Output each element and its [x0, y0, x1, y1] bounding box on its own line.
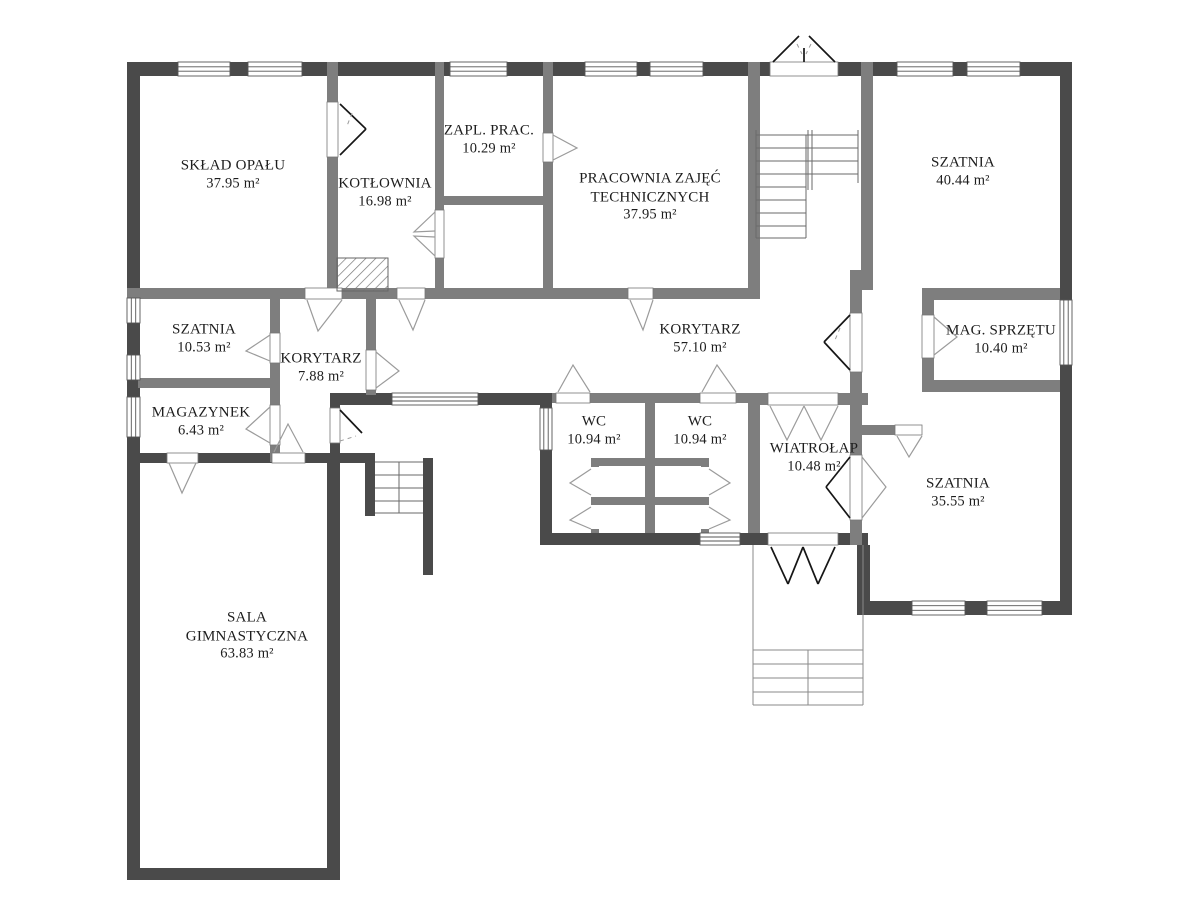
floor-plan: SKŁAD OPAŁU 37.95 m² KOTŁOWNIA 16.98 m² …	[0, 0, 1200, 900]
room-area: 35.55 m²	[898, 493, 1018, 511]
window	[912, 601, 965, 615]
room-name: WC	[645, 413, 755, 432]
room-label-korytarz-788: KORYTARZ 7.88 m²	[266, 350, 376, 387]
room-name: ZAPL. PRAC.	[429, 122, 549, 141]
room-area: 37.95 m²	[138, 175, 328, 193]
main-staircase	[756, 130, 858, 238]
room-label-szatnia-1053: SZATNIA 10.53 m²	[144, 321, 264, 358]
window	[248, 62, 302, 76]
room-name: PRACOWNIA ZAJĘĆ TECHNICZNYCH	[550, 169, 750, 206]
window	[967, 62, 1020, 76]
room-label-pracownia: PRACOWNIA ZAJĘĆ TECHNICZNYCH 37.95 m²	[550, 169, 750, 224]
room-label-wiatrolap: WIATROŁAP 10.48 m²	[749, 440, 879, 477]
entrance-steps	[753, 545, 863, 705]
room-name: WIATROŁAP	[749, 440, 879, 459]
room-label-wc-right: WC 10.94 m²	[645, 413, 755, 450]
floor-plan-drawing	[0, 0, 1200, 900]
room-area: 63.83 m²	[177, 646, 317, 664]
room-area: 40.44 m²	[903, 172, 1023, 190]
room-area: 10.94 m²	[645, 431, 755, 449]
room-area: 57.10 m²	[630, 339, 770, 357]
room-area: 10.40 m²	[921, 340, 1081, 358]
basement-staircase	[375, 462, 423, 513]
interior-walls	[127, 62, 1060, 545]
room-area: 10.53 m²	[144, 339, 264, 357]
room-name: WC	[539, 413, 649, 432]
room-area: 10.48 m²	[749, 458, 879, 476]
hatched-area	[337, 258, 388, 291]
room-name: MAG. SPRZĘTU	[921, 322, 1081, 341]
room-area: 7.88 m²	[266, 368, 376, 386]
room-label-kotlownia: KOTŁOWNIA 16.98 m²	[315, 175, 455, 212]
room-label-zapl-prac: ZAPL. PRAC. 10.29 m²	[429, 122, 549, 159]
room-name: MAGAZYNEK	[131, 404, 271, 423]
room-name: SALA GIMNASTYCZNA	[177, 608, 317, 645]
room-label-wc-left: WC 10.94 m²	[539, 413, 649, 450]
room-label-korytarz-5710: KORYTARZ 57.10 m²	[630, 321, 770, 358]
room-area: 10.94 m²	[539, 431, 649, 449]
window	[987, 601, 1042, 615]
room-name: KORYTARZ	[266, 350, 376, 369]
room-name: SZATNIA	[903, 154, 1023, 173]
room-name: KOTŁOWNIA	[315, 175, 455, 194]
room-label-mag-sprzetu: MAG. SPRZĘTU 10.40 m²	[921, 322, 1081, 359]
room-label-sklad-opalu: SKŁAD OPAŁU 37.95 m²	[138, 157, 328, 194]
window	[450, 62, 507, 76]
room-label-sala-gimnastyczna: SALA GIMNASTYCZNA 63.83 m²	[177, 608, 317, 663]
room-name: KORYTARZ	[630, 321, 770, 340]
room-name: SKŁAD OPAŁU	[138, 157, 328, 176]
window	[127, 298, 140, 323]
window	[178, 62, 230, 76]
room-name: SZATNIA	[898, 475, 1018, 494]
room-area: 10.29 m²	[429, 140, 549, 158]
window	[585, 62, 637, 76]
window	[650, 62, 703, 76]
room-area: 6.43 m²	[131, 422, 271, 440]
room-area: 16.98 m²	[315, 193, 455, 211]
door-leaf-dashes	[340, 44, 840, 441]
room-label-szatnia-4044: SZATNIA 40.44 m²	[903, 154, 1023, 191]
room-area: 37.95 m²	[550, 207, 750, 225]
window	[127, 355, 140, 380]
window	[897, 62, 953, 76]
room-label-magazynek: MAGAZYNEK 6.43 m²	[131, 404, 271, 441]
room-label-szatnia-3555: SZATNIA 35.55 m²	[898, 475, 1018, 512]
room-name: SZATNIA	[144, 321, 264, 340]
window	[392, 393, 478, 405]
window	[700, 533, 740, 545]
